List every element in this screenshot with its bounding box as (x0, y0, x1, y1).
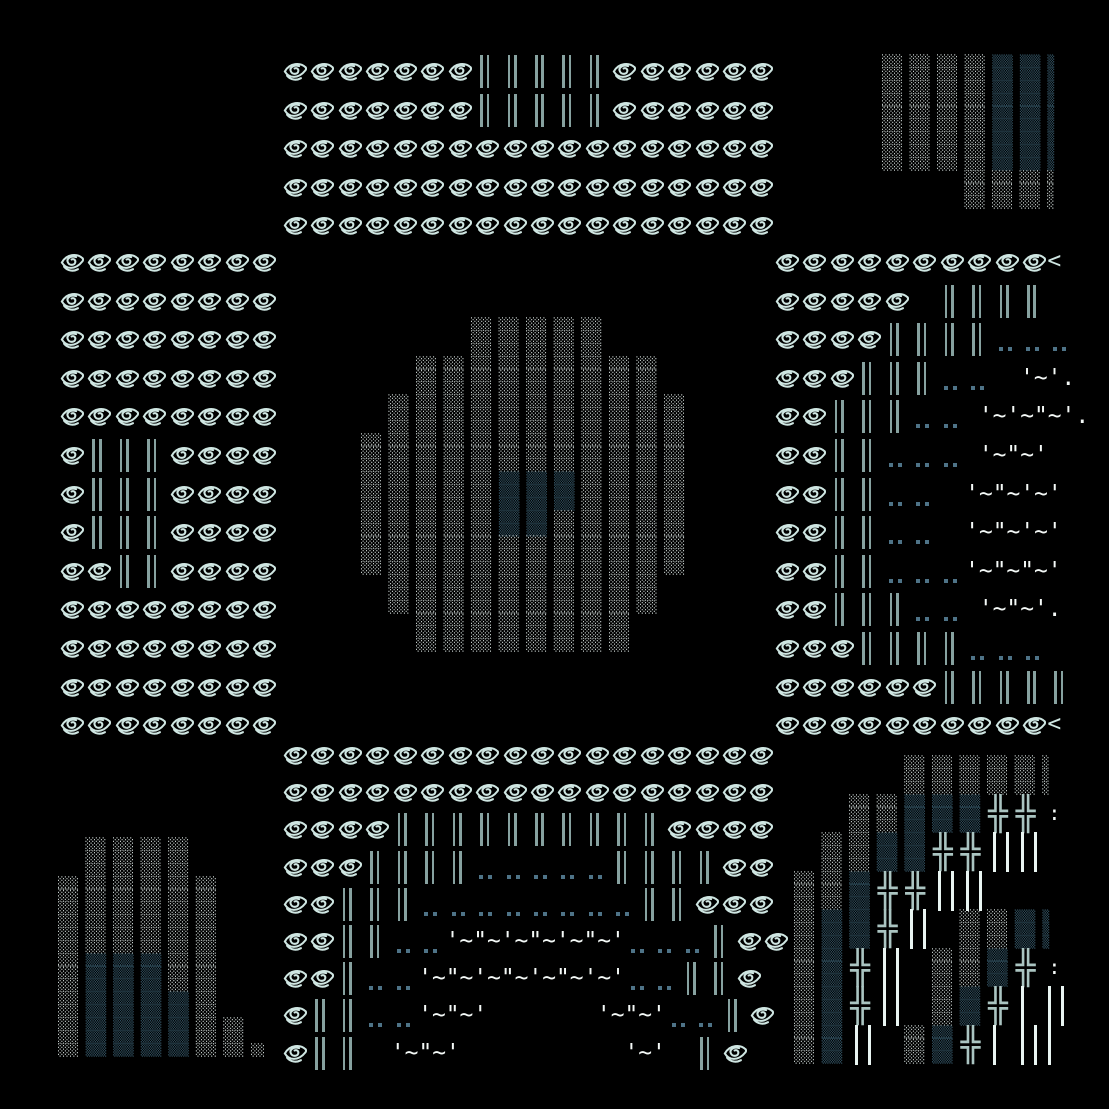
eye-icon (223, 320, 250, 352)
eye-icon (446, 206, 473, 238)
eye-icon (281, 959, 308, 991)
eye-icon (735, 922, 762, 954)
eye-icon (223, 590, 250, 622)
shade-texture: ░ ░ ░ (1042, 756, 1049, 795)
eye-icon (773, 629, 800, 661)
eye-icon (223, 243, 250, 275)
eye-icon (528, 129, 555, 161)
eye-icon (85, 359, 112, 391)
eye-icon (855, 320, 882, 352)
glyph-row (58, 590, 278, 629)
eye-icon (800, 590, 827, 622)
cross-glyph: ╬ (878, 910, 898, 949)
eye-icon (501, 168, 528, 200)
dot-pair-glyph (501, 848, 528, 886)
glyph-row (58, 513, 278, 552)
eye-icon (773, 397, 800, 429)
cross-glyph: ╬ (988, 795, 1008, 834)
eye-icon (610, 206, 637, 238)
eye-icon (140, 282, 167, 314)
eye-icon (168, 397, 195, 429)
glyph-row (58, 475, 278, 514)
eye-icon (195, 552, 222, 584)
glyph-row: '~'. (773, 359, 1089, 398)
glyph-row: '~'~"~'. (773, 397, 1089, 436)
mosaic-row: ░░░ ░░░ ░░░░░░ ░░░ ░░░░░░ ░░░ ░░░░░░ ░░░… (794, 756, 1070, 795)
eye-icon (308, 810, 335, 842)
eye-icon (58, 475, 85, 507)
dot-pair-glyph (652, 959, 679, 997)
eye-icon (665, 810, 692, 842)
cross-glyph: ╬ (1016, 949, 1036, 988)
eye-icon (720, 129, 747, 161)
cross-glyph: ╬ (850, 987, 870, 1026)
glyph-row (281, 885, 789, 922)
dot-pair-glyph (938, 436, 965, 474)
mosaic-row: ░░░ ░░░ ░░░▒▒▒ ▒▒▒ ▒▒▒▒▒▒ ▒▒▒ ▒▒▒╬░░░ ░░… (794, 910, 1070, 949)
dot-pair-glyph (363, 959, 390, 997)
eye-icon (693, 206, 720, 238)
eye-icon (168, 668, 195, 700)
glyph-row (773, 320, 1089, 359)
glyph-row (58, 436, 278, 475)
eye-icon (855, 706, 882, 738)
dot-pair-glyph (583, 848, 610, 886)
eye-icon (828, 629, 855, 661)
eye-icon (665, 206, 692, 238)
eye-icon (250, 629, 277, 661)
eye-icon (446, 52, 473, 84)
eye-icon (773, 668, 800, 700)
eye-icon (195, 243, 222, 275)
eye-icon (583, 736, 610, 768)
shade-texture: ░░░ ░░░ ░░░ (932, 756, 953, 795)
dot-pair-glyph (583, 885, 610, 923)
mosaic-cell (822, 756, 850, 795)
eye-icon (113, 590, 140, 622)
eye-icon (58, 668, 85, 700)
eye-icon (281, 736, 308, 768)
eye-icon (638, 168, 665, 200)
dark-shade-block: ▒▒▒ ▒▒▒ ▒▒▒ (960, 987, 988, 1026)
dot-pair-glyph (391, 959, 418, 997)
mosaic-cell: ╬ (1015, 949, 1043, 988)
shade-texture: ▒ ▒ ▒ (1042, 910, 1049, 949)
mosaic-cell (1015, 872, 1043, 911)
eye-icon (883, 243, 910, 275)
mosaic-cell (877, 987, 905, 1026)
panel-bottom-right-mosaic: ░░░ ░░░ ░░░░░░ ░░░ ░░░░░░ ░░░ ░░░░░░ ░░░… (794, 756, 1070, 1064)
eye-icon (555, 129, 582, 161)
eye-icon (195, 320, 222, 352)
shade-texture: ░░░ ░░░ ░░░ (960, 756, 981, 795)
shade-texture: ▒▒▒ ▒▒▒ ▒▒▒ (822, 987, 843, 1026)
eye-icon (281, 91, 308, 123)
mosaic-row: ░░░ ░░░ ░░░▒▒▒ ▒▒▒ ▒▒▒░░░ ░░░ ░░░▒▒▒ ▒▒▒… (794, 1026, 1070, 1065)
eye-icon (168, 282, 195, 314)
tilde-string: '~'~"~'. (965, 397, 1089, 435)
shade-texture: ░░░ ░░░ ░░░ (932, 949, 953, 988)
bright-bar-glyph (1006, 832, 1009, 872)
eye-icon (391, 91, 418, 123)
shade-texture: ░░░ ░░░ ░░░ (822, 872, 843, 911)
eye-icon (58, 436, 85, 468)
dot-pair-glyph (938, 359, 965, 397)
glyph-row (58, 243, 278, 282)
dot-pair-glyph (910, 436, 937, 474)
glyph-row (773, 629, 1089, 668)
eye-icon (828, 706, 855, 738)
shade-texture: ▒▒▒ ▒▒▒ ▒▒▒ (822, 1026, 843, 1065)
dot-pair-glyph (938, 590, 965, 628)
eye-icon (391, 736, 418, 768)
mosaic-cell (932, 872, 960, 911)
eye-icon (363, 52, 390, 84)
eye-icon (583, 773, 610, 805)
eye-icon (58, 552, 85, 584)
light-shade-partial: ░ ░ ░ (1042, 756, 1070, 795)
dot-pair-glyph (555, 848, 582, 886)
shade-texture: ░░░ ░░░ ░░░ (987, 910, 1008, 949)
dot-pair-glyph (1020, 320, 1047, 358)
shade-texture: ░░░ ░░░ ░░░ (987, 756, 1008, 795)
dot-pair-glyph (625, 959, 652, 997)
eye-icon (250, 436, 277, 468)
eye-icon (773, 475, 800, 507)
mosaic-cell (987, 1026, 1015, 1065)
eye-icon (555, 168, 582, 200)
eye-icon (168, 320, 195, 352)
eye-icon (195, 397, 222, 429)
eye-icon (910, 243, 937, 275)
eye-icon (168, 590, 195, 622)
mosaic-cell: ╬ (960, 833, 988, 872)
shade-texture: ░░░ ░░░ ░░░ (794, 910, 815, 949)
shade-texture: ░░░ ░░░ ░░░ (960, 949, 981, 988)
colon-glyph: : (1048, 949, 1060, 985)
dot-pair-glyph (910, 552, 937, 590)
shade-texture: ▒▒▒ ▒▒▒ ▒▒▒ (822, 949, 843, 988)
glyph-row (58, 320, 278, 359)
light-shade-block: ░░░ ░░░ ░░░ (849, 795, 877, 834)
panel-center-blob-texture: ░░░ ░░░ ░░░ ░░░ ░░░ ░░░ ░░░ ░░░ ░░░ ░░░ … (361, 318, 692, 652)
eye-icon (223, 552, 250, 584)
mosaic-cell (1015, 833, 1043, 872)
dot-pair-glyph (910, 475, 937, 513)
eye-icon (308, 168, 335, 200)
shade-texture: ░░░ ░░░ ░░░ (877, 795, 898, 834)
eye-icon (336, 810, 363, 842)
light-shade-block: ░░░ ░░░ ░░░ (932, 949, 960, 988)
eye-icon (113, 320, 140, 352)
eye-icon (1020, 243, 1047, 275)
mosaic-row: ░░░ ░░░ ░░░▒▒▒ ▒▒▒ ▒▒▒╬░░░ ░░░ ░░░░░░ ░░… (794, 949, 1070, 988)
eye-icon (223, 282, 250, 314)
dark-shade-block: ▒▒▒ ▒▒▒ ▒▒▒ (960, 795, 988, 834)
eye-icon (281, 168, 308, 200)
eye-icon (747, 91, 774, 123)
eye-icon (58, 397, 85, 429)
dot-pair-glyph (625, 922, 652, 960)
bright-bar-glyph (1021, 1025, 1024, 1065)
eye-icon (363, 773, 390, 805)
eye-icon (58, 359, 85, 391)
eye-icon (800, 320, 827, 352)
eye-icon (610, 129, 637, 161)
dot-pair-glyph (473, 848, 500, 886)
eye-icon (583, 168, 610, 200)
eye-icon (665, 129, 692, 161)
eye-icon (85, 397, 112, 429)
eye-icon (665, 91, 692, 123)
eye-icon (308, 91, 335, 123)
dot-pair-glyph (680, 922, 707, 960)
eye-icon (140, 243, 167, 275)
dot-pair-glyph (391, 996, 418, 1034)
mosaic-cell: ╬ (987, 795, 1015, 834)
dot-pair-glyph (391, 922, 418, 960)
light-shade-block: ░░░ ░░░ ░░░ (794, 910, 822, 949)
eye-icon (363, 736, 390, 768)
eye-icon (638, 91, 665, 123)
glyph-row (281, 52, 775, 91)
eye-icon (665, 168, 692, 200)
bright-bar-glyph (1048, 1025, 1051, 1065)
eye-icon (747, 168, 774, 200)
eye-icon (693, 885, 720, 917)
eye-icon (250, 475, 277, 507)
bright-bar-glyph (883, 948, 886, 988)
eye-icon (113, 359, 140, 391)
eye-icon (250, 706, 277, 738)
eye-icon (773, 513, 800, 545)
eye-icon (195, 436, 222, 468)
bright-bar-glyph (1034, 1025, 1037, 1065)
eye-icon (281, 885, 308, 917)
bright-bar-glyph (1048, 986, 1051, 1026)
eye-icon (308, 773, 335, 805)
eye-icon (336, 773, 363, 805)
eye-icon (828, 282, 855, 314)
eye-icon (308, 52, 335, 84)
light-shade-block: ░░░ ░░░ ░░░ (822, 872, 850, 911)
glyph-row: < (773, 243, 1089, 282)
eye-icon (308, 129, 335, 161)
mosaic-cell (794, 756, 822, 795)
mosaic-cell: ╬ (987, 987, 1015, 1026)
eye-icon (773, 706, 800, 738)
eye-icon (747, 885, 774, 917)
shade-texture: ░░░ ░░░ ░░░ (849, 795, 870, 834)
eye-icon (800, 475, 827, 507)
bright-bar-glyph (883, 986, 886, 1026)
eye-icon (391, 773, 418, 805)
shade-texture: ▒▒▒ ▒▒▒ ▒▒▒ (822, 910, 843, 949)
eye-icon (773, 590, 800, 622)
glyph-row (58, 706, 278, 745)
eye-icon (58, 513, 85, 545)
eye-icon (113, 706, 140, 738)
light-shade-block: ░░░ ░░░ ░░░ (960, 756, 988, 795)
eye-icon (223, 436, 250, 468)
shade-texture: ▒▒▒ ▒▒▒ ▒▒▒ (932, 795, 953, 834)
dark-shade-block: ▒▒▒ ▒▒▒ ▒▒▒ (932, 795, 960, 834)
dot-pair-glyph (910, 513, 937, 551)
dot-pair-glyph (363, 996, 390, 1034)
mosaic-cell (794, 795, 822, 834)
glyph-row: '~"~'~"~'~"~' (281, 922, 789, 959)
eye-icon (855, 282, 882, 314)
eye-icon (223, 359, 250, 391)
eye-icon (308, 848, 335, 880)
dark-shade-block: ▒▒▒ ▒▒▒ ▒▒▒ (822, 987, 850, 1026)
bright-bar-glyph (868, 1025, 871, 1065)
glyph-row (58, 397, 278, 436)
light-shade-block: ░░░ ░░░ ░░░ (987, 910, 1015, 949)
eye-icon (336, 129, 363, 161)
eye-icon (391, 52, 418, 84)
dot-pair-glyph (938, 552, 965, 590)
eye-icon (58, 243, 85, 275)
dot-pair-glyph (883, 513, 910, 551)
panel-left-middle-eyes (58, 243, 278, 745)
eye-icon (883, 706, 910, 738)
eye-icon (250, 320, 277, 352)
eye-icon (250, 243, 277, 275)
eye-icon (223, 513, 250, 545)
light-shade-block: ░░░ ░░░ ░░░ (904, 1026, 932, 1065)
panel-right-middle-eyes: < '~'. '~'~"~'. '~"~' '~"~'~' '~"~'~''~"… (773, 243, 1089, 745)
eye-icon (473, 736, 500, 768)
bright-bar-glyph (910, 909, 913, 949)
shade-texture: ░░░ ░░░ ░░░ (1015, 756, 1036, 795)
mosaic-cell (1042, 987, 1070, 1026)
dot-pair-glyph (652, 922, 679, 960)
mosaic-cell: ╬ (932, 833, 960, 872)
glyph-row: < (773, 706, 1089, 745)
eye-icon (721, 1034, 748, 1066)
panel-top-right-texture: ░░░ ░░░ ░░░ ░░░ ▒▒▒ ▒▒▒ ▒ ░░░ ░░░ ░░░ ░░… (882, 55, 1054, 209)
eye-icon (910, 668, 937, 700)
eye-icon (140, 320, 167, 352)
eye-icon (85, 243, 112, 275)
eye-icon (281, 848, 308, 880)
eye-icon (250, 397, 277, 429)
eye-icon (610, 168, 637, 200)
dot-pair-glyph (883, 475, 910, 513)
glyph-row (281, 773, 789, 810)
dot-pair-glyph (501, 885, 528, 923)
glyph-row (281, 810, 789, 847)
eye-icon (720, 91, 747, 123)
eye-icon (638, 736, 665, 768)
eye-icon (747, 52, 774, 84)
dot-pair-glyph (610, 885, 637, 923)
eye-icon (336, 91, 363, 123)
shade-texture: ░░░ ░░░ ░░░ (794, 1026, 815, 1065)
eye-icon (363, 129, 390, 161)
shade-texture: ░░░ ░░░ ░░░ (904, 1026, 925, 1065)
tilde-string: '~"~"~' (965, 552, 1061, 590)
shade-texture: ▒▒▒ ▒▒▒ ▒▒▒ (849, 872, 870, 911)
eye-icon (281, 52, 308, 84)
cross-glyph: ╬ (933, 833, 953, 872)
eye-icon (308, 959, 335, 991)
dark-shade-block: ▒▒▒ ▒▒▒ ▒▒▒ (987, 949, 1015, 988)
eye-icon (747, 206, 774, 238)
eye-icon (773, 552, 800, 584)
eye-icon (910, 706, 937, 738)
eye-icon (693, 736, 720, 768)
eye-icon (195, 668, 222, 700)
bright-bar-glyph (938, 871, 941, 911)
eye-icon (528, 773, 555, 805)
eye-icon (113, 397, 140, 429)
eye-icon (735, 959, 762, 991)
glyph-row (58, 629, 278, 668)
dark-shade-block: ▒▒▒ ▒▒▒ ▒▒▒ (822, 1026, 850, 1065)
eye-icon (85, 668, 112, 700)
eye-icon (473, 168, 500, 200)
eye-icon (693, 129, 720, 161)
mosaic-cell: ╬ (877, 872, 905, 911)
eye-icon (800, 397, 827, 429)
eye-icon (965, 706, 992, 738)
eye-icon (446, 91, 473, 123)
glyph-row (773, 668, 1089, 707)
mosaic-cell (877, 1026, 905, 1065)
bright-bar-glyph (923, 909, 926, 949)
eye-icon (501, 129, 528, 161)
mosaic-cell: ╬ (877, 910, 905, 949)
light-shade-block: ░░░ ░░░ ░░░ (794, 1026, 822, 1065)
eye-icon (140, 668, 167, 700)
eye-icon (391, 129, 418, 161)
eye-icon (800, 513, 827, 545)
eye-icon (250, 359, 277, 391)
eye-icon (638, 773, 665, 805)
dot-pair-glyph (993, 320, 1020, 358)
panel-bottom-center-eyes: '~"~'~"~'~"~''~"~'~"~'~"~'~''~"~''~"~' '… (281, 736, 789, 1071)
eye-icon (113, 282, 140, 314)
dark-shade-block: ▒▒▒ ▒▒▒ ▒▒▒ (904, 833, 932, 872)
eye-icon (828, 668, 855, 700)
eye-icon (638, 129, 665, 161)
eye-icon (828, 320, 855, 352)
dot-pair-glyph (1020, 629, 1047, 667)
tilde-string: '~"~' (965, 436, 1048, 474)
eye-icon (223, 397, 250, 429)
mosaic-cell (987, 872, 1015, 911)
eye-icon (85, 706, 112, 738)
eye-icon (223, 475, 250, 507)
eye-icon (773, 320, 800, 352)
eye-icon (528, 206, 555, 238)
bright-bar-glyph (1021, 986, 1024, 1026)
eye-icon (555, 773, 582, 805)
mosaic-cell: ╬ (1015, 795, 1043, 834)
mosaic-cell (822, 795, 850, 834)
bright-bar-glyph (966, 871, 969, 911)
eye-icon (336, 168, 363, 200)
eye-icon (250, 552, 277, 584)
eye-icon (665, 52, 692, 84)
eye-icon (250, 668, 277, 700)
eye-icon (391, 206, 418, 238)
eye-icon (223, 629, 250, 661)
eye-icon (195, 706, 222, 738)
eye-icon (638, 52, 665, 84)
